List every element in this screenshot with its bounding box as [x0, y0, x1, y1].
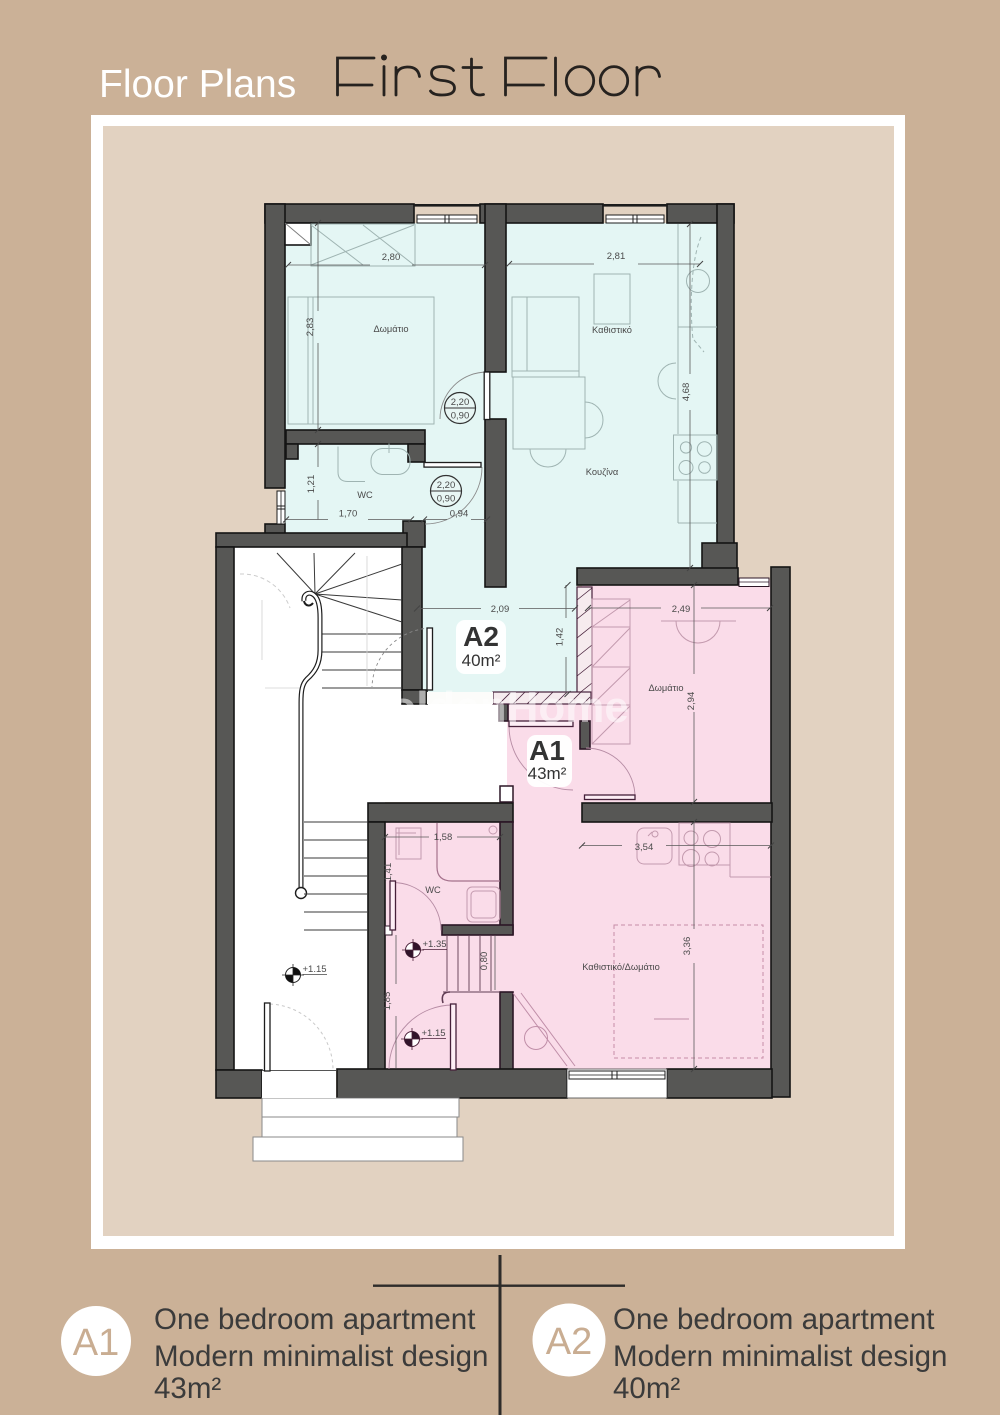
svg-text:2,83: 2,83: [305, 318, 316, 337]
svg-text:2,20: 2,20: [451, 397, 470, 408]
svg-text:3,54: 3,54: [635, 842, 654, 853]
svg-text:4,68: 4,68: [681, 383, 692, 402]
svg-text:1,42: 1,42: [555, 628, 566, 647]
svg-text:Floor Plans: Floor Plans: [99, 63, 296, 106]
svg-text:1,85: 1,85: [382, 992, 393, 1011]
svg-text:1,58: 1,58: [434, 832, 453, 843]
svg-text:+1.35: +1.35: [423, 939, 447, 950]
svg-text:1,41: 1,41: [383, 863, 394, 882]
svg-text:One bedroom apartment: One bedroom apartment: [154, 1303, 475, 1336]
svg-text:40m²: 40m²: [462, 651, 501, 670]
svg-text:A2: A2: [546, 1321, 592, 1363]
svg-text:+1.15: +1.15: [303, 964, 327, 975]
svg-text:43m²: 43m²: [528, 764, 567, 783]
svg-text:2,20: 2,20: [437, 480, 456, 491]
svg-text:3,36: 3,36: [682, 937, 693, 956]
svg-text:2,49: 2,49: [672, 604, 691, 615]
svg-text:A2: A2: [463, 621, 499, 652]
svg-text:0,90: 0,90: [451, 411, 470, 422]
svg-text:A1: A1: [73, 1322, 119, 1364]
svg-text:WC: WC: [425, 885, 441, 895]
svg-text:Καθιστικό: Καθιστικό: [592, 325, 632, 335]
svg-text:Δωμάτιο: Δωμάτιο: [373, 324, 408, 334]
svg-text:0,90: 0,90: [437, 494, 456, 505]
svg-text:40m²: 40m²: [613, 1372, 680, 1405]
svg-text:1,70: 1,70: [339, 509, 358, 520]
svg-text:2,80: 2,80: [382, 252, 401, 263]
svg-text:0,94: 0,94: [450, 509, 469, 520]
svg-text:1,21: 1,21: [306, 475, 317, 494]
svg-text:A1: A1: [529, 735, 565, 766]
svg-text:Δωμάτιο: Δωμάτιο: [648, 683, 683, 693]
svg-text:Modern minimalist design: Modern minimalist design: [154, 1340, 488, 1373]
svg-text:2,94: 2,94: [686, 692, 697, 711]
svg-text:0,80: 0,80: [479, 952, 490, 971]
svg-text:43m²: 43m²: [154, 1372, 221, 1405]
svg-text:WC: WC: [357, 490, 373, 500]
svg-text:GoldenHome: GoldenHome: [355, 683, 629, 732]
svg-text:Καθιστικό/Δωμάτιο: Καθιστικό/Δωμάτιο: [582, 962, 660, 972]
svg-text:Modern minimalist design: Modern minimalist design: [613, 1340, 947, 1373]
svg-text:2,09: 2,09: [491, 604, 510, 615]
svg-text:+1.15: +1.15: [422, 1028, 446, 1039]
svg-text:2,81: 2,81: [607, 251, 626, 262]
svg-text:Κουζίνα: Κουζίνα: [586, 467, 619, 477]
svg-text:One bedroom apartment: One bedroom apartment: [613, 1303, 934, 1336]
